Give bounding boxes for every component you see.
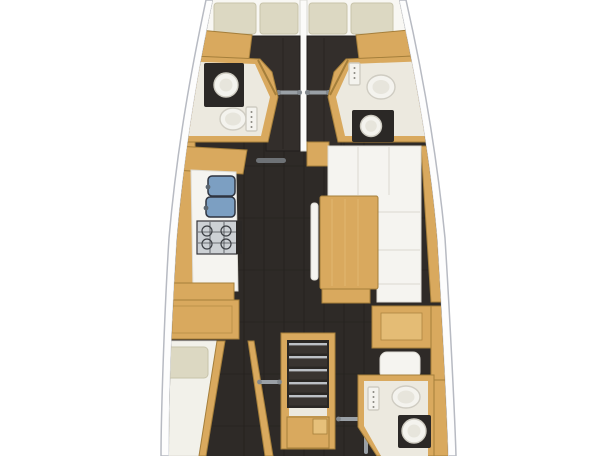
washbasin-bowl — [220, 79, 233, 92]
toilet-seat — [398, 391, 415, 404]
galley-base-cabinet — [170, 283, 234, 301]
desk-panel — [381, 313, 422, 340]
floor-hatch-bar — [256, 158, 286, 163]
aft-settee-bench — [322, 289, 370, 303]
salon-corner-cabinet — [307, 142, 329, 166]
sliding-door-rail-port — [276, 90, 302, 95]
galley-sink — [208, 176, 235, 196]
washbasin-bowl — [365, 120, 377, 132]
pillow — [214, 3, 256, 34]
pillow — [260, 3, 298, 34]
engine-hatch — [313, 419, 327, 434]
galley-sink — [206, 197, 235, 217]
faucet — [204, 206, 209, 211]
toilet-seat — [225, 113, 241, 126]
stove-cooktop — [197, 221, 242, 254]
aft-head-starboard — [358, 375, 434, 456]
pillow — [309, 3, 347, 34]
pillow — [351, 3, 393, 34]
salon-bench — [311, 203, 318, 280]
stair-landing — [289, 408, 327, 416]
washbasin-bowl — [408, 425, 421, 438]
stair-treads — [289, 343, 327, 406]
floor-plan-canvas — [0, 0, 608, 456]
dining-table — [320, 196, 378, 289]
faucet — [206, 185, 211, 190]
yacht-floor-plan — [0, 0, 608, 456]
handrail-left — [257, 380, 282, 385]
center-bulkhead-divider — [300, 0, 307, 151]
pillow — [167, 347, 208, 378]
sliding-door-rail-starboard — [305, 90, 331, 95]
toilet-seat — [373, 80, 390, 94]
